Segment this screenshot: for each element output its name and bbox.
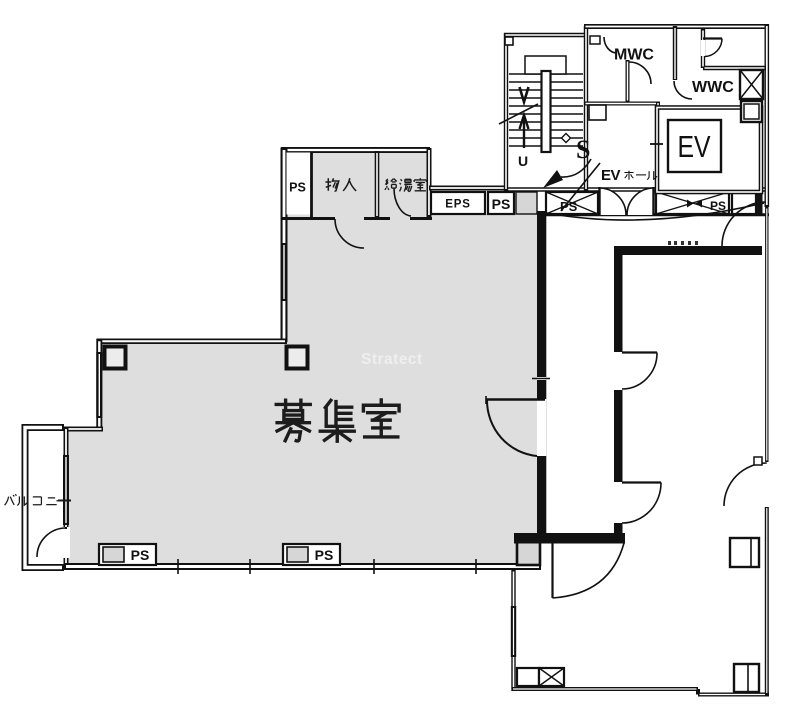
svg-text:WWC: WWC (692, 79, 734, 96)
svg-text:PS: PS (289, 181, 306, 195)
svg-text:MWC: MWC (614, 47, 654, 64)
svg-text:EPS: EPS (445, 199, 470, 211)
svg-text:PS: PS (492, 196, 511, 212)
svg-text:U: U (518, 153, 528, 169)
svg-text:EV: EV (601, 167, 621, 184)
svg-text:PS: PS (315, 547, 334, 563)
svg-text:Stratect: Stratect (361, 351, 423, 368)
svg-text:EV: EV (677, 129, 710, 163)
svg-text:PS: PS (131, 547, 150, 563)
svg-text:S: S (576, 135, 590, 164)
